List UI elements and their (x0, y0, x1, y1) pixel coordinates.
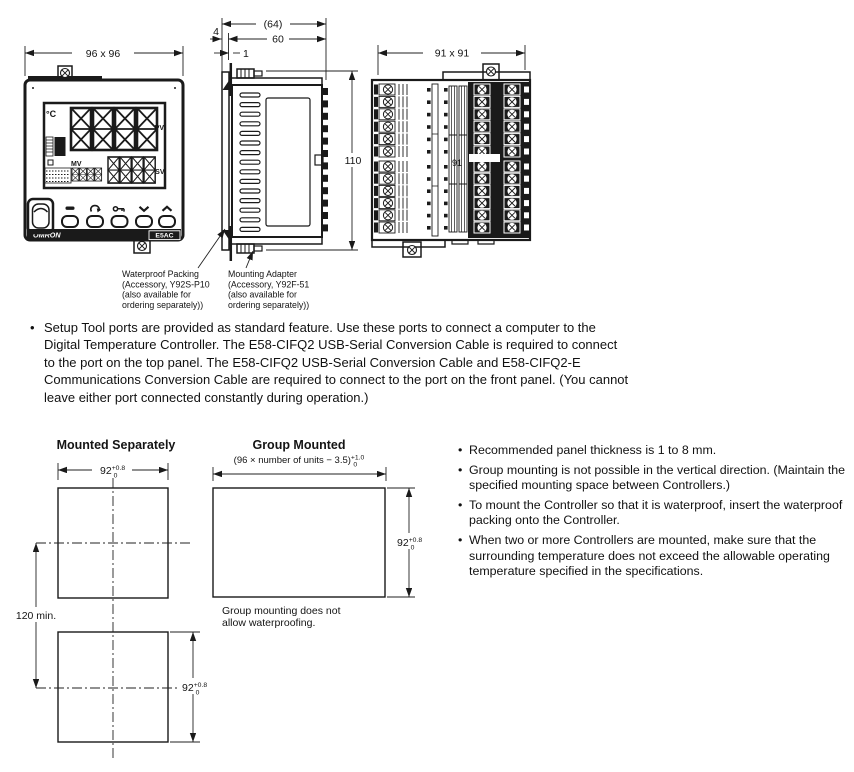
group-mounted-title: Group Mounted (252, 438, 345, 452)
adapter-line: ordering separately)) (228, 300, 309, 310)
packing-line: (also available for (122, 290, 191, 300)
packing-leader (198, 229, 225, 268)
shift-icon (113, 207, 124, 212)
setup-note-paragraph: Setup Tool ports are provided as standar… (30, 319, 630, 406)
group-cutout-rect (213, 488, 385, 597)
note-item: To mount the Controller so that it is wa… (458, 498, 852, 529)
datasheet-page: 96 x 96 °C PV (0, 0, 854, 772)
up-icon (163, 207, 172, 211)
adapter-line: Mounting Adapter (228, 269, 297, 279)
mounting-notes: Recommended panel thickness is 1 to 8 mm… (458, 443, 852, 584)
bullet-marker (30, 319, 44, 406)
note-text: When two or more Controllers are mounted… (469, 533, 852, 580)
group-caption-line1: Group mounting does not (222, 605, 341, 617)
mode-icon (91, 206, 101, 213)
dim-value: 92 (100, 465, 112, 477)
bullet-marker (458, 533, 469, 580)
tol-low: 0 (411, 545, 415, 552)
side-dim-panel: 1 (243, 48, 249, 60)
callout-mounting-adapter: Mounting Adapter (Accessory, Y92F-51 (al… (228, 269, 309, 310)
front-bottom-screw (134, 240, 150, 253)
note-text: Recommended panel thickness is 1 to 8 mm… (469, 443, 716, 459)
model-logo: E5AC (155, 233, 173, 240)
front-dim-label: 96 x 96 (86, 48, 121, 60)
side-dim-bezel: 4 (213, 26, 219, 38)
setup-note-text: Setup Tool ports are provided as standar… (44, 319, 630, 406)
side-body (232, 85, 322, 237)
tol-high: +1.0 (351, 455, 365, 462)
side-view: (64) 60 4 1 (198, 17, 365, 268)
side-dim-height: 110 (345, 155, 362, 167)
mv-digits (72, 168, 102, 181)
rear-left-terminals (374, 84, 407, 233)
panel-cutout-drawings: Mounted Separately 92+0.80 120 min. 92+0… (0, 430, 450, 772)
rear-view: 91 x 91 91 (372, 45, 530, 257)
side-dim-depth: 60 (272, 34, 284, 46)
pv-label: PV (155, 125, 165, 132)
tol-high: +0.8 (194, 682, 208, 689)
down-icon (140, 207, 149, 211)
pv-digits (71, 108, 157, 150)
packing-line: Waterproof Packing (122, 269, 199, 279)
vertical-spacing-dim: 120 min. (16, 610, 56, 622)
dim-value: 92 (397, 537, 409, 549)
adapter-bolt-top (237, 69, 262, 78)
key-buttons (62, 216, 175, 227)
mechanical-drawings: 96 x 96 °C PV (0, 0, 854, 318)
tol-low: 0 (196, 690, 200, 697)
mv-label: MV (71, 161, 82, 168)
note-item: Group mounting is not possible in the ve… (458, 463, 852, 494)
tol-low: 0 (353, 462, 357, 469)
level-icon (66, 207, 75, 210)
temperature-unit-label: °C (46, 109, 57, 119)
packing-line: (Accessory, Y92S-P10 (122, 279, 210, 289)
side-bezel (222, 72, 229, 250)
mounted-separately-title: Mounted Separately (57, 438, 176, 452)
tol-low: 0 (114, 473, 118, 480)
formula-base: (96 × number of units − 3.5) (234, 455, 351, 466)
side-label-area (266, 98, 310, 226)
note-item: When two or more Controllers are mounted… (458, 533, 852, 580)
setup-port-cover (28, 199, 53, 233)
shift-key (112, 216, 128, 227)
adapter-line: (Accessory, Y92F-51 (228, 279, 309, 289)
note-text: Group mounting is not possible in the ve… (469, 463, 852, 494)
key-icons (66, 206, 172, 213)
bullet-marker (458, 498, 469, 529)
mode-key (87, 216, 103, 227)
tol-high: +0.8 (112, 465, 126, 472)
adapter-hook-top (223, 79, 231, 90)
sv-label: SV (155, 169, 165, 176)
side-dim-overall: (64) (264, 19, 283, 31)
adapter-line: (also available for (228, 290, 297, 300)
rear-bottom-screw (403, 242, 421, 257)
down-key (136, 216, 152, 227)
group-width-formula: (96 × number of units − 3.5)+1.00 (234, 455, 365, 469)
front-view: 96 x 96 °C PV (25, 45, 183, 253)
group-caption-line2: allow waterproofing. (222, 617, 315, 629)
note-text: To mount the Controller so that it is wa… (469, 498, 852, 529)
up-key (159, 216, 175, 227)
rear-dim-label: 91 x 91 (435, 48, 470, 60)
note-item: Recommended panel thickness is 1 to 8 mm… (458, 443, 852, 459)
front-display: °C PV MV (44, 103, 165, 188)
display-indicators (45, 137, 71, 183)
level-key (62, 216, 78, 227)
group-mounted-drawing: Group Mounted (96 × number of units − 3.… (213, 438, 430, 629)
callout-waterproof-packing: Waterproof Packing (Accessory, Y92S-P10 … (122, 269, 210, 310)
sv-digits (108, 157, 155, 183)
mounted-separately-drawing: Mounted Separately 92+0.80 120 min. 92+0… (9, 438, 214, 758)
adapter-bolt-bottom (237, 244, 262, 253)
front-brand-band: OMRON E5AC (27, 229, 181, 240)
rear-faint-mark: 91 (452, 158, 462, 168)
packing-line: ordering separately)) (122, 300, 203, 310)
bullet-marker (458, 443, 469, 459)
dim-value: 92 (182, 682, 194, 694)
vent-slots (240, 93, 260, 231)
bullet-marker (458, 463, 469, 494)
tol-high: +0.8 (409, 537, 423, 544)
